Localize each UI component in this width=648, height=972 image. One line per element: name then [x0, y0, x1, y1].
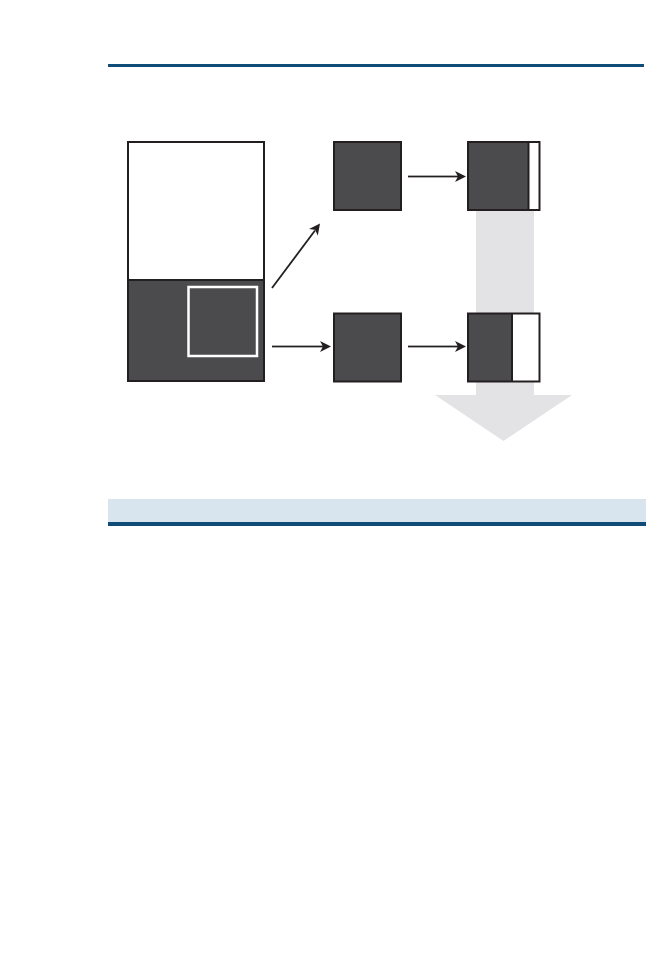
document-page [0, 0, 648, 972]
footer-highlight-band [108, 499, 646, 522]
top-horizontal-arrow [408, 171, 466, 182]
diagonal-arrow-line [272, 231, 315, 289]
diagonal-arrowhead [309, 224, 320, 236]
diagonal-arrow [272, 224, 320, 289]
original-dark-region [128, 280, 264, 381]
figure-crop-copy-diagram [0, 0, 648, 972]
bottom-left-arrow [272, 341, 331, 352]
bottom-row-group [334, 314, 540, 382]
bottom-right-arrow [408, 341, 466, 352]
top-result-dark-part [468, 142, 529, 210]
bottom-extracted-block [334, 314, 401, 382]
bottom-result-dark-part [468, 314, 512, 382]
flow-down-arrowhead [435, 395, 572, 441]
footer-section-rule [108, 522, 646, 526]
top-extracted-block [334, 142, 401, 210]
original-page-group [128, 142, 264, 381]
